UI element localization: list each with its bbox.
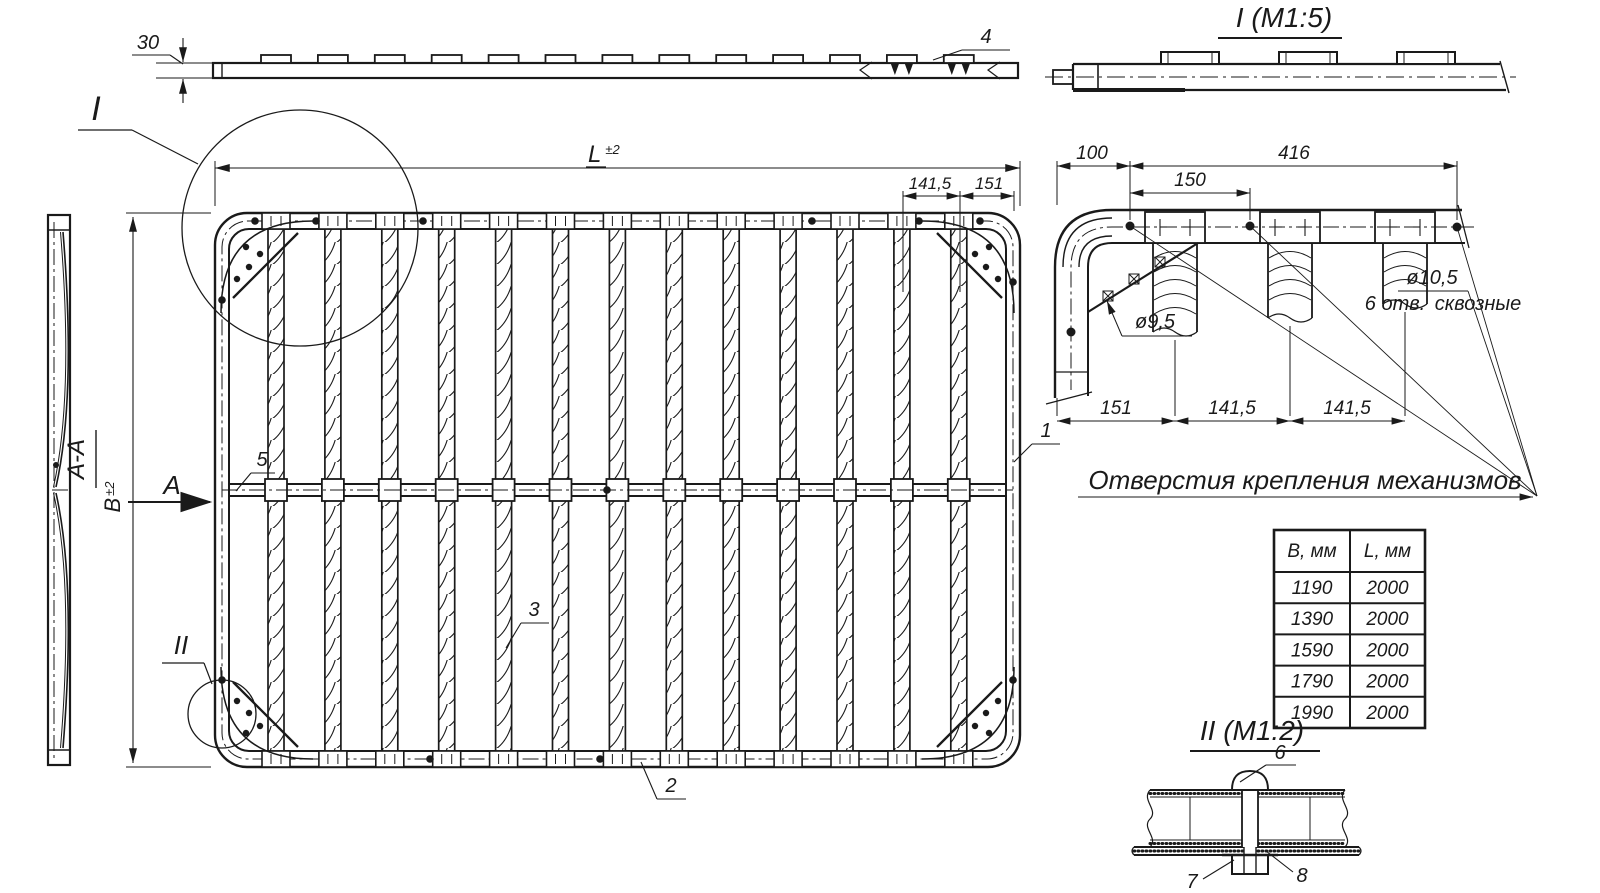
- callout-3: 3: [506, 599, 549, 648]
- svg-text:100: 100: [1076, 143, 1108, 164]
- table-cell: 2000: [1365, 578, 1409, 599]
- mount-note: Отверстия крепления механизмов: [1078, 465, 1533, 497]
- table-cell: 2000: [1365, 609, 1409, 630]
- break-mark: [860, 62, 872, 79]
- slat-holder: [831, 751, 859, 767]
- slat-end-tab: [773, 55, 803, 63]
- section-aa-view: A-A: [48, 215, 96, 765]
- slat-holder: [376, 751, 404, 767]
- dim-30: 30: [137, 32, 159, 54]
- width-dimension: В±2: [100, 213, 211, 767]
- slat-end-tab: [716, 55, 746, 63]
- size-table: В, ммL, мм119020001390200015902000179020…: [1274, 530, 1425, 728]
- svg-text:6 отв.: 6 отв.: [1365, 293, 1425, 315]
- slat-holder: [262, 213, 290, 229]
- section-arrow: A: [128, 470, 210, 502]
- table-cell: 1190: [1292, 578, 1333, 599]
- hole-leader-lines: [1130, 226, 1537, 496]
- detail-ii-title: II (M1:2): [1200, 715, 1304, 746]
- svg-text:5: 5: [256, 449, 268, 471]
- svg-text:В±2: В±2: [100, 481, 125, 513]
- slat-holder: [774, 213, 802, 229]
- slat-holder: [717, 751, 745, 767]
- slat-holder: [603, 213, 631, 229]
- detail-ii-label: II: [162, 630, 212, 684]
- slat-holder: [888, 213, 916, 229]
- svg-text:150: 150: [1174, 170, 1206, 191]
- slat-holder: [490, 751, 518, 767]
- slat-holder: [547, 751, 575, 767]
- rivets: [1103, 257, 1165, 301]
- table-cell: 1390: [1291, 609, 1334, 630]
- length-dimension: L±2: [215, 141, 1020, 206]
- slat-end-tab: [887, 55, 917, 63]
- slat-end-tab: [318, 55, 348, 63]
- svg-text:416: 416: [1278, 143, 1310, 164]
- svg-text:ø9,5: ø9,5: [1135, 311, 1176, 333]
- dim-bottom-pitches: 151 141,5 141,5: [1057, 312, 1405, 421]
- drawing-sheet: 30 4 A-A I: [0, 0, 1600, 893]
- detail-i-tab: [1161, 52, 1219, 64]
- slat-holder: [888, 751, 916, 767]
- bolted-joint: [1132, 771, 1361, 874]
- section-title: A-A: [63, 439, 90, 481]
- detail-slats: [1145, 212, 1435, 336]
- thickness-dimension: 30: [132, 32, 212, 103]
- table-header: L, мм: [1364, 541, 1411, 562]
- svg-text:151: 151: [975, 174, 1003, 193]
- svg-text:сквозные: сквозные: [1435, 293, 1521, 315]
- table-cell: 1590: [1291, 640, 1334, 661]
- svg-text:141,5: 141,5: [1208, 398, 1256, 419]
- slat-end-tab: [546, 55, 576, 63]
- callout-8: 8: [1266, 851, 1308, 887]
- svg-text:1: 1: [1040, 420, 1051, 442]
- svg-text:2: 2: [664, 775, 676, 797]
- bolt-head: [1232, 771, 1268, 790]
- svg-text:3: 3: [528, 599, 539, 621]
- svg-text:L±2: L±2: [588, 141, 620, 168]
- bracket-tooth: [891, 64, 899, 75]
- slat-end-tab: [659, 55, 689, 63]
- dim-100-416-150: 100 416 150: [1057, 143, 1457, 220]
- slat-holder: [433, 751, 461, 767]
- slat-holder: [660, 751, 688, 767]
- svg-text:7: 7: [1186, 871, 1198, 893]
- slat-holder: [547, 213, 575, 229]
- slat-holder: [490, 213, 518, 229]
- slat-end-tab: [489, 55, 519, 63]
- bracket-tooth: [948, 64, 956, 75]
- break-mark: [988, 62, 1000, 79]
- table-cell: 2000: [1365, 672, 1409, 693]
- slat-holder: [603, 751, 631, 767]
- detail-i-title: I (M1:5): [1236, 2, 1332, 33]
- slat-end-tab: [261, 55, 291, 63]
- slat-holder: [262, 751, 290, 767]
- callout-4-label: 4: [980, 26, 991, 48]
- svg-text:II: II: [174, 630, 188, 660]
- svg-text:141,5: 141,5: [1323, 398, 1371, 419]
- slat-end-tab: [375, 55, 405, 63]
- slat-end-tab: [830, 55, 860, 63]
- slat-holder: [831, 213, 859, 229]
- svg-text:8: 8: [1296, 865, 1307, 887]
- detail-i-label: I: [78, 90, 198, 164]
- svg-text:151: 151: [1100, 398, 1132, 419]
- detail-ii-view: II (M1:2) 6 7 8: [1132, 715, 1361, 893]
- gusset-edge: [1088, 243, 1198, 312]
- slat-holder: [319, 213, 347, 229]
- top-side-view: 30 4: [132, 26, 1018, 103]
- svg-text:A: A: [161, 470, 180, 500]
- slat-holder: [660, 213, 688, 229]
- table-cell: 1790: [1291, 672, 1334, 693]
- detail-i-tab: [1279, 52, 1337, 64]
- svg-text:ø10,5: ø10,5: [1406, 267, 1458, 289]
- technical-drawing: 30 4 A-A I: [0, 0, 1600, 893]
- callout-6: 6: [1240, 742, 1296, 782]
- detail-slat: [1260, 212, 1320, 322]
- callout-7: 7: [1186, 860, 1234, 893]
- mount-note-text: Отверстия крепления механизмов: [1088, 465, 1521, 495]
- slat-end-tab: [432, 55, 462, 63]
- rivet-dia-label: ø9,5: [1107, 301, 1192, 336]
- mount-hole-dia-label: ø10,5 6 отв. сквозные: [1365, 267, 1521, 315]
- bracket-tooth: [962, 64, 970, 75]
- detail-i-tab: [1397, 52, 1455, 64]
- svg-text:6: 6: [1274, 742, 1286, 764]
- svg-text:141,5: 141,5: [909, 174, 952, 193]
- table-cell: 2000: [1365, 703, 1409, 724]
- slat-end-tab: [944, 55, 974, 63]
- slat-holder: [319, 751, 347, 767]
- slat-holder: [945, 213, 973, 229]
- table-cell: 2000: [1365, 640, 1409, 661]
- slat-holder: [717, 213, 745, 229]
- corner-detail-view: 100 416 150 151 141,5 141,5 ø9,5 ø10,5 6…: [1046, 143, 1537, 496]
- bracket-tooth: [905, 64, 913, 75]
- slat-end-tab: [602, 55, 632, 63]
- main-view: I II A L±2 В±2 141,5 151 1: [78, 90, 1060, 799]
- slat-holder: [774, 751, 802, 767]
- slat-holder: [376, 213, 404, 229]
- table-header: В, мм: [1287, 541, 1336, 562]
- detail-i-tabs: [1161, 52, 1455, 64]
- slat-holder: [433, 213, 461, 229]
- svg-text:I: I: [91, 90, 101, 128]
- slat-holder: [945, 751, 973, 767]
- detail-i-view: I (M1:5): [1045, 2, 1516, 93]
